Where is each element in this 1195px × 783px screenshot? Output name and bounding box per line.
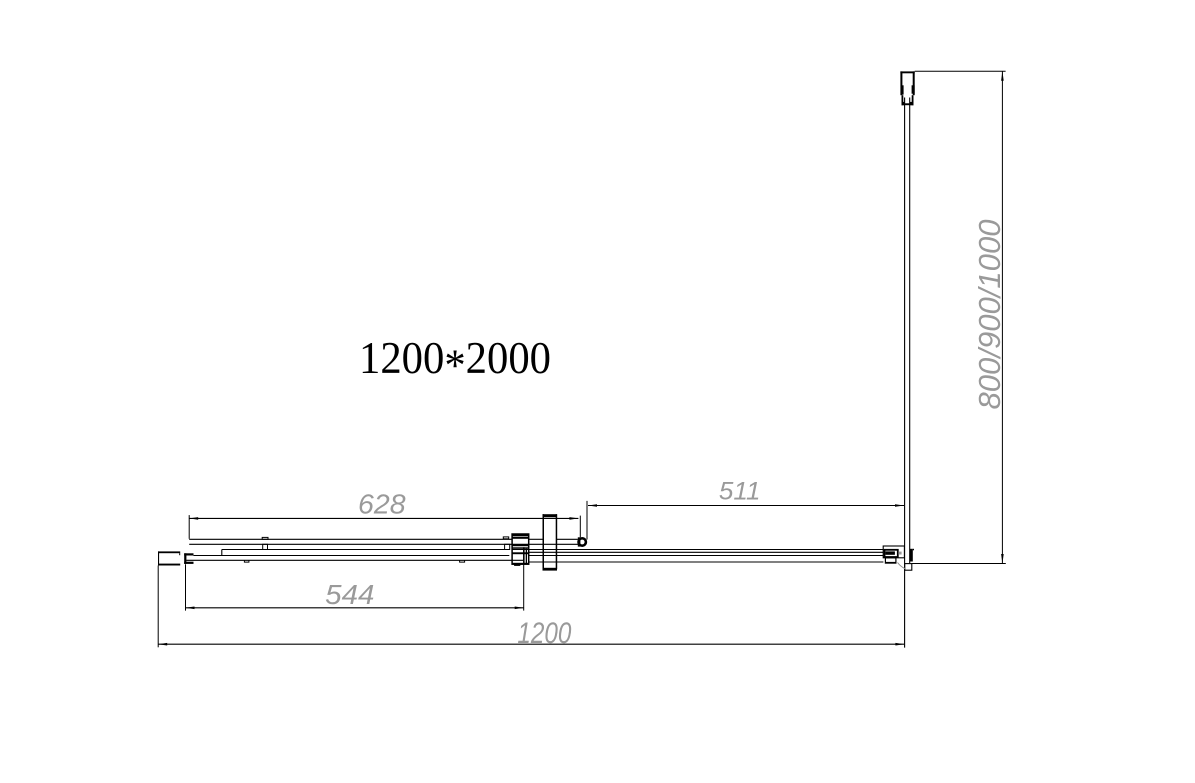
svg-text:800/900/1000: 800/900/1000 (972, 220, 1007, 410)
svg-text:544: 544 (325, 579, 374, 610)
svg-text:628: 628 (358, 488, 406, 519)
svg-text:1200: 1200 (517, 617, 571, 650)
svg-text:1200*2000: 1200*2000 (359, 332, 551, 391)
svg-text:511: 511 (719, 478, 761, 506)
